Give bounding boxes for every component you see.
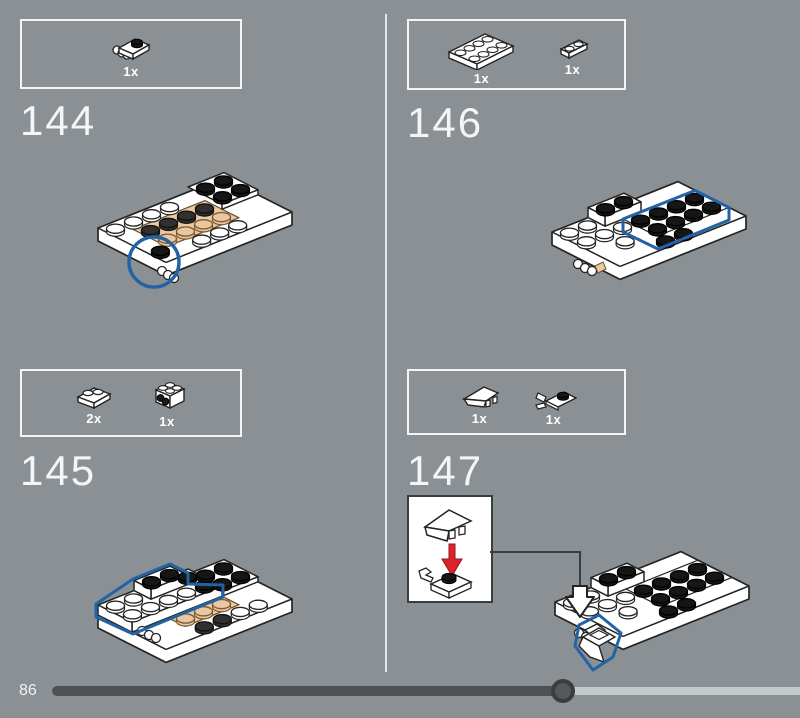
part-item: 1x [456, 378, 504, 426]
assembly-145 [82, 531, 310, 681]
plate-2x4-icon [441, 24, 523, 70]
part-count: 1x [565, 62, 580, 77]
parts-box-146: 1x 1x [407, 19, 626, 90]
instructions-page: { "pagination": { "page_number": "86", "… [0, 0, 800, 718]
plate-2x2-icon [72, 380, 116, 410]
column-divider [385, 14, 387, 672]
plate-1x1-clip-icon [530, 377, 578, 411]
part-item: 1x [441, 24, 523, 86]
part-item: 1x [553, 33, 593, 77]
step-number-147: 147 [407, 450, 483, 492]
wedge-1x2-icon [456, 378, 504, 410]
page-number: 86 [19, 682, 37, 700]
red-arrow-icon [442, 544, 462, 576]
part-count: 1x [123, 64, 138, 79]
part-item: 1x [530, 377, 578, 427]
assembly-146 [538, 172, 750, 300]
progress-bar-filled[interactable] [52, 686, 563, 696]
parts-box-147: 1x 1x [407, 369, 626, 435]
down-arrow-icon [566, 586, 594, 617]
parts-box-145: 2x 1x [20, 369, 242, 437]
progress-scrubber-handle[interactable] [551, 679, 575, 703]
part-count: 1x [546, 412, 561, 427]
part-count: 1x [159, 414, 174, 429]
sub-assembly-inset [407, 495, 493, 603]
plate-1x2-icon [553, 33, 593, 61]
plate-1x1-clip-icon [107, 29, 155, 63]
step-number-145: 145 [20, 450, 96, 492]
part-item: 2x [72, 380, 116, 426]
sub-assembly-diagram [409, 497, 491, 601]
bracket-2x2-icon [144, 377, 190, 413]
part-count: 1x [472, 411, 487, 426]
part-item: 1x [107, 29, 155, 79]
step-number-144: 144 [20, 100, 96, 142]
parts-box-144: 1x [20, 19, 242, 89]
progress-bar-track[interactable] [560, 687, 800, 695]
part-count: 1x [474, 71, 489, 86]
part-item: 1x [144, 377, 190, 429]
assembly-144 [82, 170, 307, 298]
part-count: 2x [86, 411, 101, 426]
step-number-146: 146 [407, 102, 483, 144]
inset-connector-arrow [488, 540, 608, 630]
